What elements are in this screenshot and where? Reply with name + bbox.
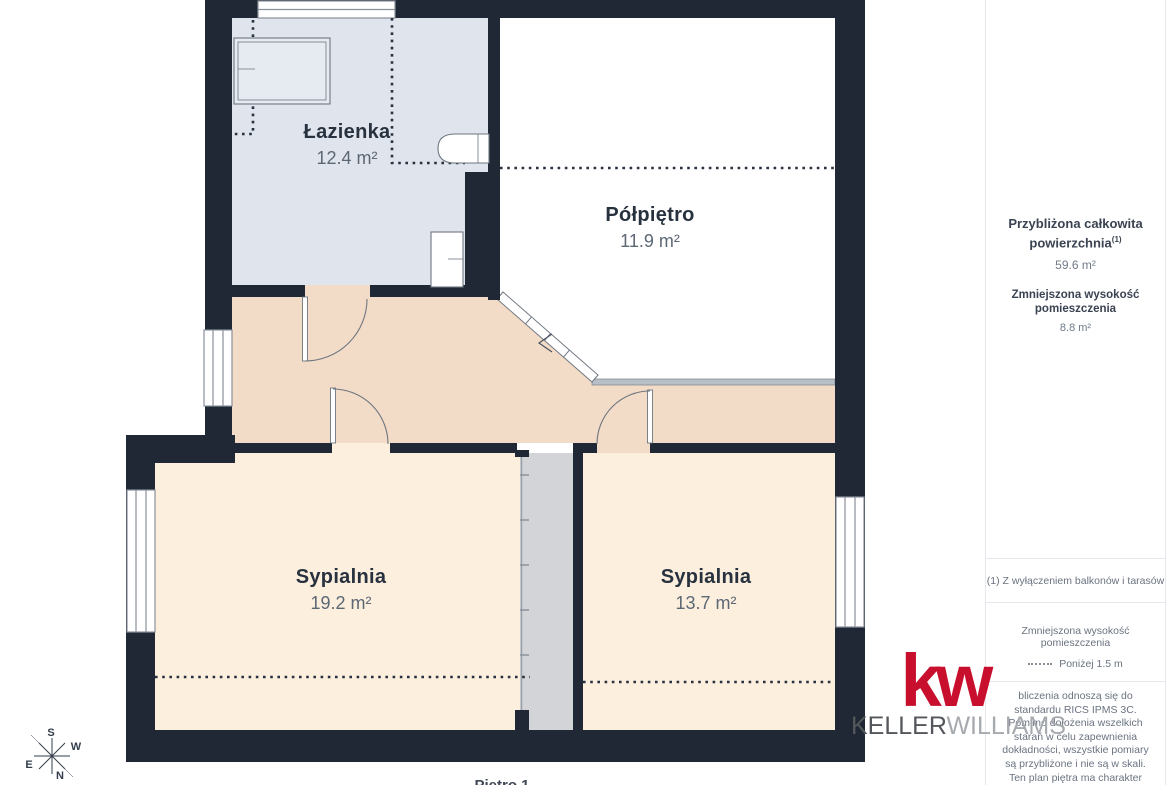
- room-label-bedroom-right: Sypialnia 13.7 m²: [661, 564, 752, 616]
- kw-wordmark: KELLERWILLIAMS: [851, 714, 1037, 739]
- floorplan-page: S W E N Łazienka 12.4 m² Półpiętro 11.9 …: [0, 0, 1170, 785]
- bathroom-door-opening: [305, 285, 370, 297]
- bedroom-left-door-leaf: [331, 388, 336, 443]
- mezzanine-low-wall: [592, 379, 835, 385]
- sidebar-summary-section: Przybliżona całkowita powierzchnia(1) 59…: [986, 0, 1165, 558]
- room-area: 19.2 m²: [296, 590, 387, 616]
- kw-williams-text: WILLIAMS: [946, 712, 1065, 740]
- room-area: 11.9 m²: [605, 228, 694, 254]
- compass-s: S: [47, 727, 54, 739]
- floorplan-drawing: S W E N: [0, 0, 985, 785]
- room-area: 13.7 m²: [661, 590, 752, 616]
- room-label-bathroom: Łazienka 12.4 m²: [304, 119, 391, 171]
- legend-label: Zmniejszona wysokość pomieszczenia: [986, 625, 1165, 649]
- total-area-label-line1: Przybliżona całkowita: [1008, 216, 1142, 231]
- stair-shaft: [520, 453, 573, 730]
- reduced-height-value: 8.8 m²: [986, 322, 1165, 334]
- window-left-upper: [204, 330, 232, 406]
- window-bedroom-right: [836, 497, 864, 627]
- kw-mark: kw: [851, 648, 1037, 714]
- total-area-value: 59.6 m²: [986, 258, 1165, 272]
- room-name: Sypialnia: [661, 564, 752, 590]
- compass-w: W: [71, 741, 82, 753]
- room-area: 12.4 m²: [304, 145, 391, 171]
- total-area-footnote-marker: (1): [1112, 235, 1122, 244]
- room-name: Sypialnia: [296, 564, 387, 590]
- legend-value: Poniżej 1.5 m: [1059, 658, 1123, 670]
- kw-keller-text: KELLER: [851, 712, 946, 740]
- total-area-label: Przybliżona całkowita powierzchnia(1): [994, 216, 1157, 251]
- compass-n: N: [56, 770, 64, 782]
- bathroom-door-leaf: [303, 297, 308, 361]
- floor-title: Piętro 1: [452, 777, 552, 785]
- compass-rose: [31, 735, 73, 777]
- bedroom-left-door-opening: [332, 443, 390, 453]
- window-bedroom-left: [127, 490, 155, 632]
- mezzanine-floor: [500, 18, 835, 381]
- room-label-bedroom-left: Sypialnia 19.2 m²: [296, 564, 387, 616]
- sidebar-footnote-section: (1) Z wyłączeniem balkonów i tarasów: [986, 558, 1165, 602]
- footnote-text: (1) Z wyłączeniem balkonów i tarasów: [987, 575, 1164, 587]
- toilet-unit: [431, 232, 463, 287]
- room-name: Łazienka: [304, 119, 391, 145]
- room-label-mezzanine: Półpiętro 11.9 m²: [605, 202, 694, 254]
- total-area-label-line2: powierzchnia: [1029, 235, 1111, 250]
- bathtub: [234, 38, 330, 104]
- washbasin: [438, 134, 489, 163]
- bedroom-right-door-opening: [597, 443, 650, 453]
- bedroom-right-door-leaf: [648, 390, 653, 443]
- compass-e: E: [25, 759, 32, 771]
- room-name: Półpiętro: [605, 202, 694, 228]
- keller-williams-logo: kw KELLERWILLIAMS: [851, 648, 1037, 739]
- reduced-height-label: Zmniejszona wysokość pomieszczenia: [994, 288, 1157, 316]
